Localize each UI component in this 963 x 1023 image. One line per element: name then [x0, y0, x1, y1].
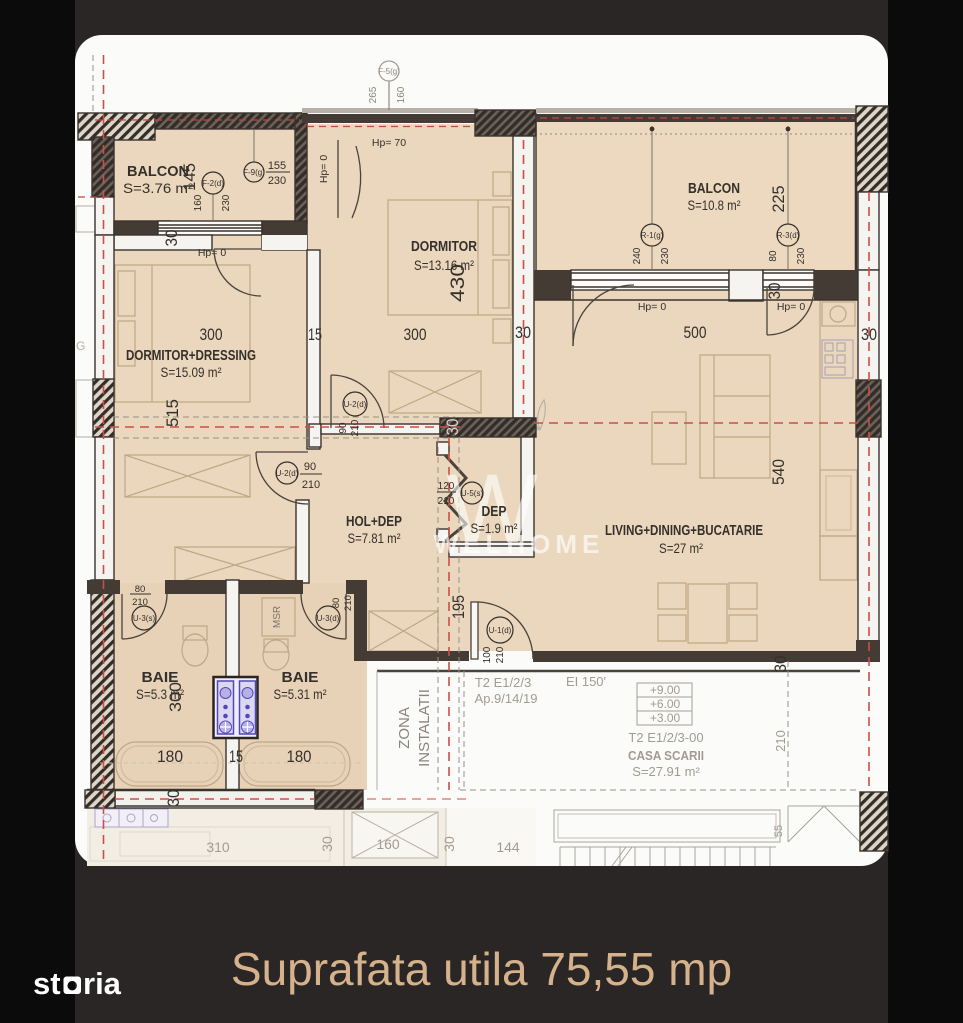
svg-text:230: 230	[268, 175, 286, 187]
svg-text:300: 300	[200, 325, 223, 344]
svg-text:U-2(d): U-2(d)	[276, 469, 299, 478]
svg-text:310: 310	[206, 839, 230, 855]
svg-text:155: 155	[268, 160, 286, 172]
svg-text:Hp= 0: Hp= 0	[318, 155, 330, 183]
svg-text:R-3(d): R-3(d)	[777, 231, 800, 240]
svg-text:210: 210	[343, 595, 354, 611]
svg-text:80: 80	[135, 584, 146, 595]
svg-text:R-1(g): R-1(g)	[641, 231, 664, 240]
svg-text:180: 180	[157, 747, 183, 766]
svg-text:S=10.8 m²: S=10.8 m²	[688, 198, 741, 213]
svg-text:30: 30	[861, 325, 877, 344]
svg-text:210: 210	[350, 419, 361, 436]
svg-text:500: 500	[684, 323, 707, 342]
svg-text:F-9(g): F-9(g)	[243, 168, 265, 177]
svg-text:225: 225	[769, 186, 788, 213]
svg-text:30: 30	[443, 419, 462, 436]
svg-text:T2 E1/2/3: T2 E1/2/3	[475, 675, 531, 690]
svg-text:T2 E1/2/3-00: T2 E1/2/3-00	[628, 730, 703, 745]
svg-text:540: 540	[769, 459, 788, 485]
svg-text:230: 230	[660, 247, 671, 264]
svg-text:210: 210	[773, 730, 788, 752]
svg-text:+9.00: +9.00	[650, 683, 681, 697]
svg-text:15: 15	[229, 747, 243, 766]
svg-text:Ap.9/14/19: Ap.9/14/19	[475, 691, 538, 706]
svg-text:HOL+DEP: HOL+DEP	[346, 514, 402, 530]
svg-text:U-5(s): U-5(s)	[461, 489, 484, 498]
svg-text:Hp= 0: Hp= 0	[198, 247, 226, 259]
svg-text:300: 300	[404, 325, 427, 344]
svg-text:DORMITOR: DORMITOR	[411, 239, 477, 255]
svg-text:F-2(d): F-2(d)	[202, 179, 224, 188]
svg-text:195: 195	[449, 595, 468, 619]
svg-text:265: 265	[368, 86, 379, 103]
svg-text:230: 230	[221, 194, 232, 211]
svg-text:144: 144	[496, 839, 520, 855]
svg-text:U-3(s): U-3(s)	[133, 614, 156, 623]
svg-text:F-5(g): F-5(g)	[378, 67, 400, 76]
svg-text:S=15.09 m²: S=15.09 m²	[161, 365, 222, 380]
svg-text:100: 100	[482, 646, 493, 663]
svg-text:Hp= 0: Hp= 0	[777, 301, 805, 313]
svg-text:S=7.81 m²: S=7.81 m²	[348, 531, 401, 546]
svg-text:210: 210	[438, 496, 455, 507]
svg-text:300: 300	[166, 682, 185, 712]
svg-text:CASA SCARII: CASA SCARII	[628, 748, 704, 763]
svg-text:S=5.31 m²: S=5.31 m²	[274, 687, 327, 702]
svg-text:160: 160	[376, 836, 400, 852]
svg-text:U-1(d): U-1(d)	[489, 626, 512, 635]
svg-text:DORMITOR+DRESSING: DORMITOR+DRESSING	[126, 348, 256, 364]
svg-text:EI 150': EI 150'	[566, 674, 606, 689]
svg-text:210: 210	[132, 597, 148, 608]
svg-text:WELHOME: WELHOME	[434, 529, 605, 559]
svg-text:145: 145	[180, 163, 199, 191]
svg-text:90: 90	[304, 461, 316, 473]
svg-text:30: 30	[765, 283, 784, 300]
svg-text:S=1.9 m²: S=1.9 m²	[471, 521, 518, 536]
svg-text:Hp= 70: Hp= 70	[372, 137, 406, 149]
svg-text:30: 30	[162, 230, 181, 247]
svg-text:30: 30	[441, 836, 457, 852]
svg-text:30: 30	[771, 656, 790, 673]
svg-text:U-2(d): U-2(d)	[344, 400, 367, 409]
svg-text:MSR: MSR	[272, 606, 283, 628]
svg-text:LIVING+DINING+BUCATARIE: LIVING+DINING+BUCATARIE	[605, 522, 763, 539]
svg-text:160: 160	[396, 86, 407, 103]
svg-text:+3.00: +3.00	[650, 711, 681, 725]
svg-text:DEP: DEP	[482, 504, 507, 520]
svg-text:210: 210	[302, 479, 320, 491]
svg-text:160: 160	[193, 194, 204, 211]
svg-text:55: 55	[773, 825, 785, 837]
svg-text:INSTALATII: INSTALATII	[416, 689, 433, 767]
svg-text:G: G	[76, 339, 85, 353]
svg-text:430: 430	[448, 264, 469, 302]
svg-text:U-3(d): U-3(d)	[317, 614, 340, 623]
svg-text:180: 180	[287, 747, 312, 766]
svg-text:515: 515	[163, 399, 182, 427]
svg-text:240: 240	[632, 247, 643, 264]
svg-text:80: 80	[331, 598, 342, 609]
svg-text:+6.00: +6.00	[650, 697, 681, 711]
svg-text:30: 30	[515, 323, 531, 342]
svg-text:BALCON: BALCON	[688, 181, 740, 197]
svg-text:Hp= 0: Hp= 0	[638, 301, 666, 313]
svg-text:S=27 m²: S=27 m²	[659, 541, 703, 556]
svg-text:S=27.91 m²: S=27.91 m²	[632, 764, 700, 779]
svg-text:210: 210	[495, 646, 506, 663]
svg-text:ZONA: ZONA	[396, 707, 413, 749]
svg-text:120: 120	[438, 481, 455, 492]
svg-text:90: 90	[338, 422, 349, 434]
svg-text:30: 30	[164, 790, 183, 807]
svg-text:230: 230	[796, 247, 807, 264]
svg-text:30: 30	[319, 836, 335, 852]
svg-text:80: 80	[768, 250, 779, 262]
svg-text:15: 15	[308, 325, 322, 344]
svg-text:BAIE: BAIE	[282, 670, 319, 686]
